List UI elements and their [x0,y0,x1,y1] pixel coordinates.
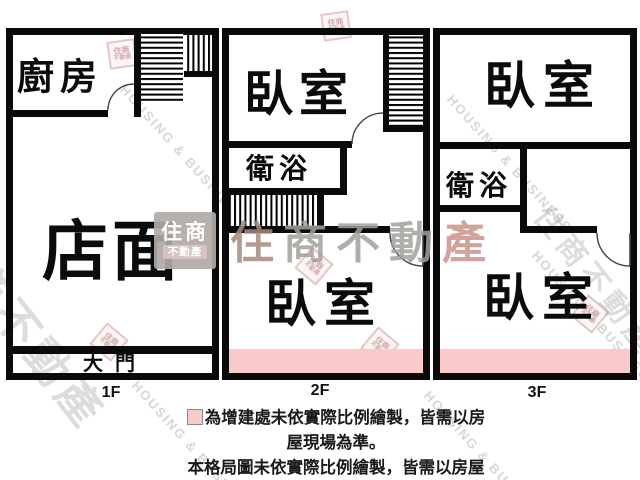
room-label-bedroom-2f-top: 臥室 [244,71,354,120]
disclaimer-line-1: 為增建處未依實際比例繪製，皆需以房屋現場為準。 [184,406,488,456]
brand-text-part: 商不動 [283,219,442,268]
room-label-bedroom-2f-bottom: 臥室 [265,279,383,330]
extension-highlight [440,349,630,373]
room-label-bedroom-3f-bottom: 臥室 [483,273,601,324]
floor-label-3f: 3F [528,384,547,402]
room-label-bath-2f: 衛浴 [246,155,312,183]
disclaimer-line-2: 本格局圖未依實際比例繪製，皆需以房屋現場為準。 [184,456,488,480]
brand-text-part: 住 [230,219,283,268]
kitchen-wall [134,28,141,117]
room-label-kitchen: 廚房 [17,59,103,96]
stairs-hatch [185,35,212,71]
extension-highlight [229,349,423,373]
stairs-hatch [389,35,423,125]
floor-label-1f: 1F [102,384,121,402]
stairwell-wall [383,28,389,132]
brand-text-part: 產 [442,219,495,268]
room-label-main-door: 大門 [83,354,147,374]
floorplan-image: HOUSING & BUSINESSHOUSING & BUSINESSHOUS… [0,0,640,480]
pink-legend-swatch [187,409,203,425]
disclaimer-notes: 為增建處未依實際比例繪製，皆需以房屋現場為準。 本格局圖未依實際比例繪製，皆需以… [184,406,488,480]
door-arc [352,113,383,144]
bath-wall [520,142,527,233]
room-label-bath-3f: 衛浴 [446,172,512,200]
disclaimer-text-2: 本格局圖未依實際比例繪製，皆需以房屋現場為準。 [188,459,485,480]
brand-text-watermark: 住商不動產 [230,222,495,266]
door-arc [597,233,630,266]
door-arc [108,84,134,110]
room-label-bedroom-3f-top: 臥室 [484,61,602,112]
brand-logo-subtext: 不動產 [163,245,208,260]
stairs-hatch [141,34,183,101]
brand-logo-watermark: 住商 不動產 [154,212,216,269]
brand-logo-text: 住商 [161,222,209,243]
floor-label-2f: 2F [311,382,330,400]
bath-wall [340,141,347,195]
disclaimer-text-1: 為增建處未依實際比例繪製，皆需以房屋現場為準。 [205,409,486,452]
